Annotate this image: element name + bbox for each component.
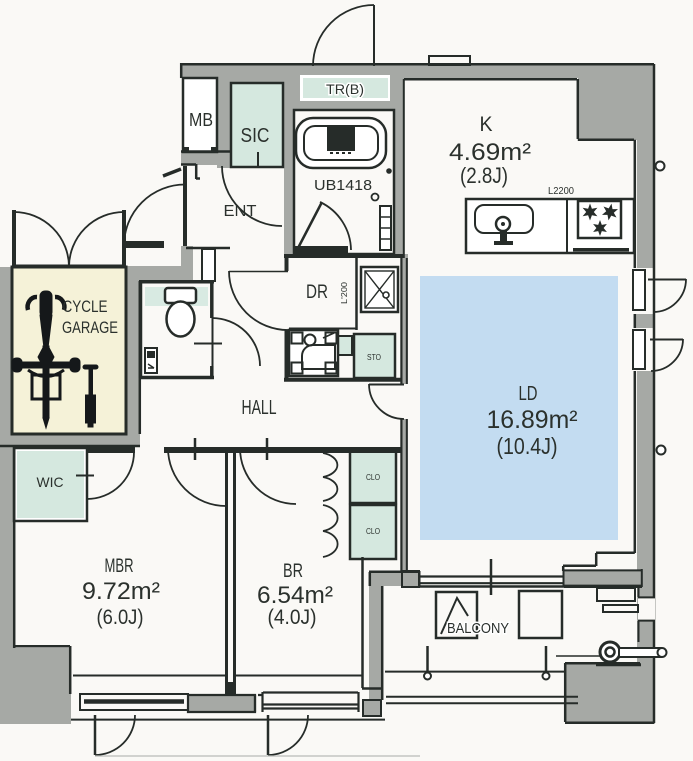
svg-text:K: K [480, 113, 493, 136]
svg-text:WIC: WIC [37, 474, 64, 490]
svg-text:(4.0J): (4.0J) [268, 606, 317, 629]
svg-text:MB: MB [189, 110, 213, 130]
svg-text:(10.4J): (10.4J) [497, 433, 558, 459]
svg-text:L2200: L2200 [548, 185, 574, 197]
svg-text:LD: LD [519, 383, 538, 405]
svg-text:(6.0J): (6.0J) [97, 606, 144, 629]
svg-text:SIC: SIC [241, 125, 270, 147]
svg-text:UB1418: UB1418 [314, 177, 372, 194]
svg-text:CLO: CLO [366, 527, 380, 536]
svg-text:MBR: MBR [105, 556, 134, 577]
svg-text:6.54m²: 6.54m² [257, 582, 333, 609]
svg-text:9.72m²: 9.72m² [82, 578, 160, 605]
svg-text:DR: DR [306, 282, 328, 303]
svg-text:TR(B): TR(B) [326, 81, 364, 97]
svg-text:CLO: CLO [366, 473, 380, 482]
svg-text:L'200: L'200 [340, 281, 349, 304]
svg-text:16.89m²: 16.89m² [487, 406, 578, 434]
svg-text:GARAGE: GARAGE [62, 318, 118, 337]
svg-text:STO: STO [367, 353, 381, 362]
svg-text:ENT: ENT [224, 203, 257, 220]
svg-text:BR: BR [283, 561, 303, 582]
svg-text:BALCONY: BALCONY [447, 620, 509, 637]
svg-text:(2.8J): (2.8J) [460, 163, 508, 188]
svg-text:4.69m²: 4.69m² [449, 139, 531, 166]
svg-text:CYCLE: CYCLE [63, 297, 108, 316]
svg-text:HALL: HALL [242, 397, 277, 419]
